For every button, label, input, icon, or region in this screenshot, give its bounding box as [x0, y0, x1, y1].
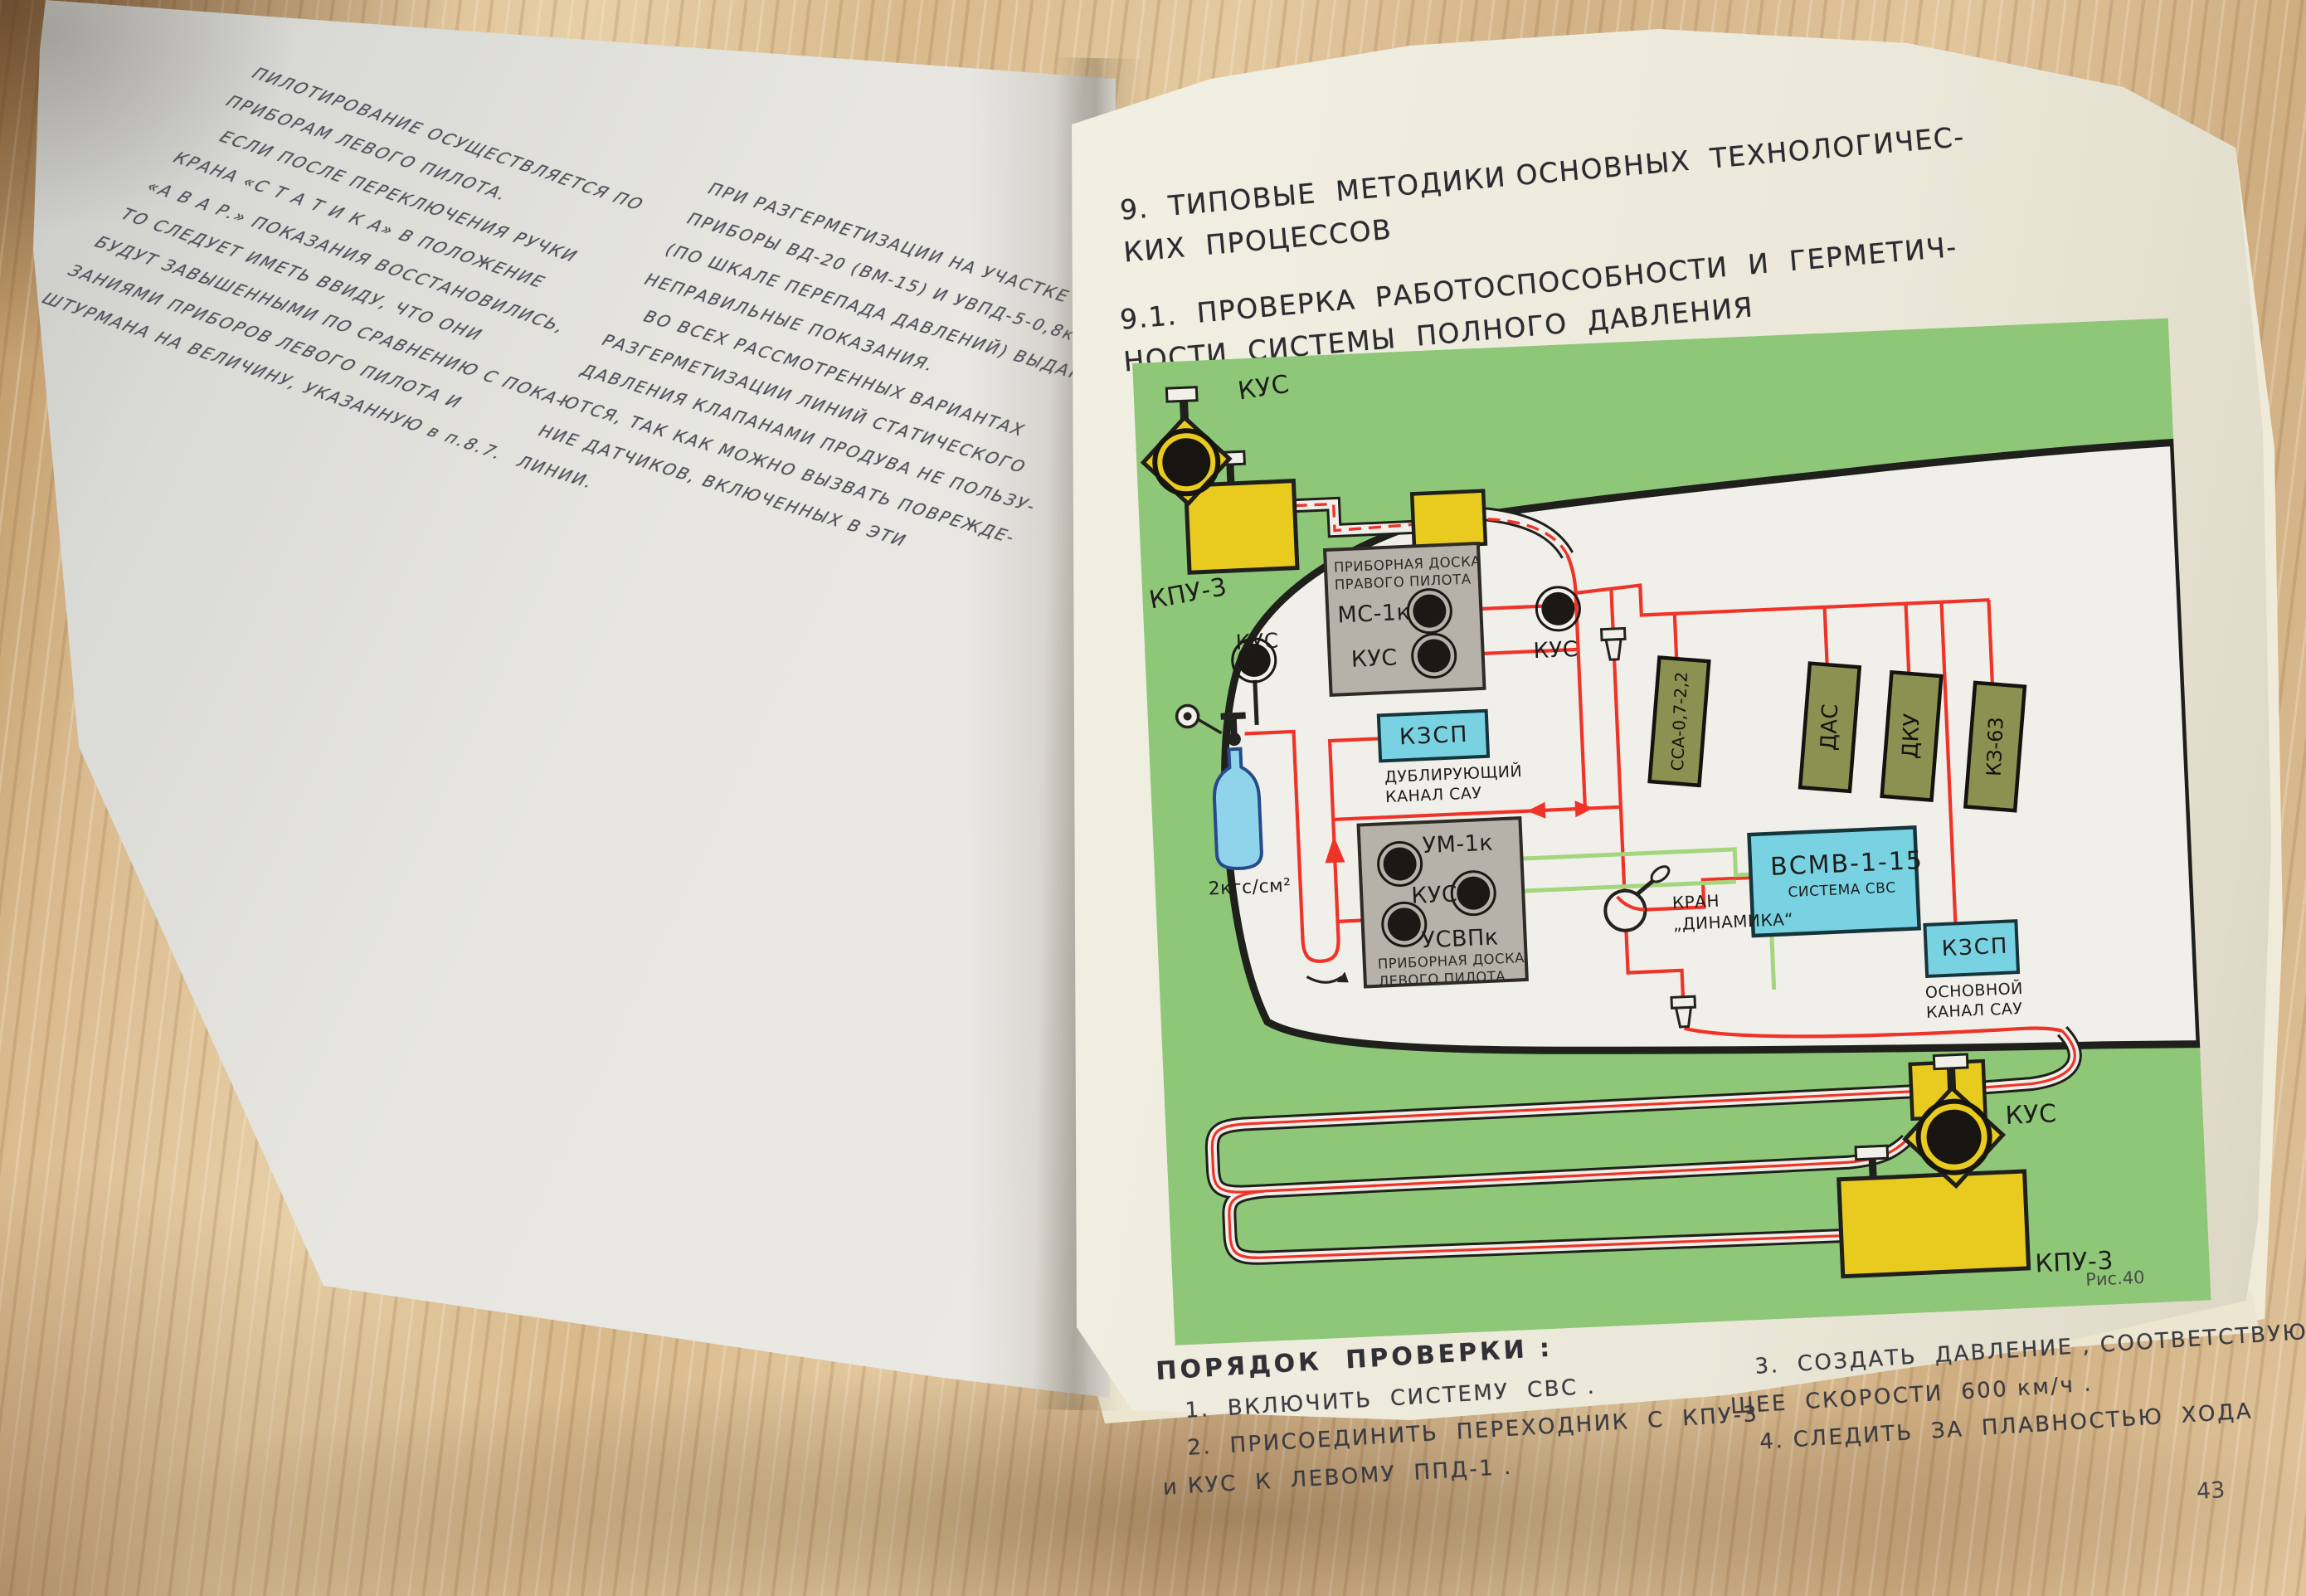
kus-inner-left-label: КУС	[1235, 628, 1279, 656]
figure-caption: Рис.40	[2085, 1268, 2145, 1290]
kzsp-dub-label: КЗСП	[1399, 721, 1469, 752]
diagram-canvas	[1132, 318, 2211, 1345]
ms1k-label: МС-1к	[1337, 599, 1411, 630]
photo-scene: ПИЛОТИРОВАНИЕ ОСУЩЕСТВЛЯЕТСЯ ПО ПРИБОРАМ…	[0, 0, 2306, 1596]
das-label: ДАС	[1817, 703, 1843, 752]
kzsp-main-label: КЗСП	[1941, 933, 2009, 964]
figure-40-diagram: КУС КПУ-3 ПРИБОРНАЯ ДОСКА ПРАВОГО ПИЛОТА…	[1132, 318, 2211, 1345]
upper-adapter	[1412, 491, 1486, 547]
um1k-label: УМ-1к	[1422, 830, 1494, 861]
right-panel-title: ПРИБОРНАЯ ДОСКА ПРАВОГО ПИЛОТА	[1334, 552, 1482, 594]
dku-label: ДКУ	[1898, 713, 1924, 760]
kus-right-panel-label: КУС	[1350, 644, 1398, 674]
page-number: 43	[2196, 1477, 2226, 1505]
left-panel-title: ПРИБОРНАЯ ДОСКА ЛЕВОГО ПИЛОТА	[1377, 949, 1525, 990]
kran-dinamika-label: КРАН „ДИНАМИКА“	[1671, 888, 1793, 935]
kus-mid-label: КУС	[1533, 636, 1579, 666]
kzsp-main-sublabel: ОСНОВНОЙ КАНАЛ САУ	[1924, 979, 2024, 1024]
bottle-pressure-label: 2кгс/см²	[1208, 874, 1292, 901]
vsmv-label: ВСМВ-1-15	[1769, 845, 1924, 883]
kus-lower-label: КУС	[2005, 1098, 2058, 1132]
kus-indicator-mid	[1535, 586, 1580, 631]
kz63-label: КЗ-63	[1982, 717, 2008, 777]
kus-left-panel-label: КУС	[1411, 881, 1458, 912]
kzsp-dub-sublabel: ДУБЛИРУЮЩИЙ КАНАЛ САУ	[1384, 762, 1524, 808]
